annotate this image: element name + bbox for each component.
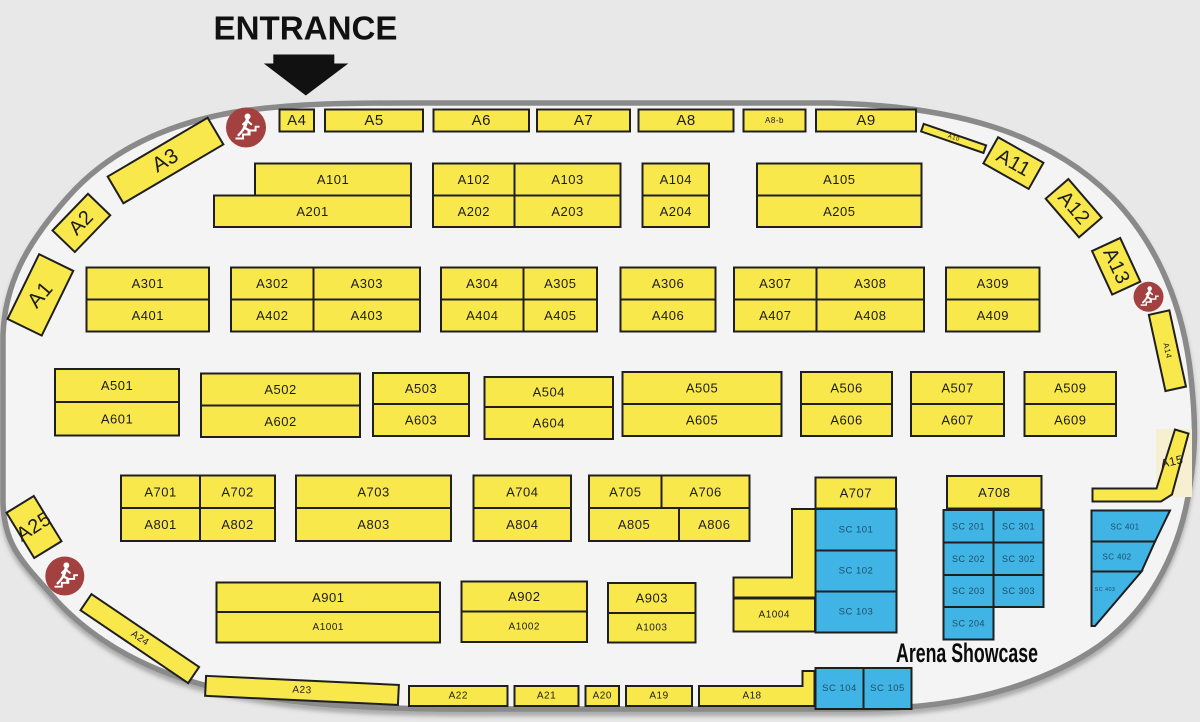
svg-text:A504: A504 (533, 385, 565, 400)
svg-text:A202: A202 (458, 204, 490, 219)
svg-text:SC 401: SC 401 (1110, 523, 1139, 532)
svg-text:A8-b: A8-b (765, 116, 784, 125)
svg-text:A105: A105 (823, 172, 855, 187)
svg-text:A804: A804 (506, 517, 538, 532)
svg-text:A903: A903 (636, 591, 668, 606)
svg-text:A604: A604 (533, 416, 565, 431)
svg-text:ENTRANCE: ENTRANCE (214, 10, 398, 47)
svg-text:A506: A506 (830, 381, 862, 396)
svg-text:A204: A204 (660, 204, 692, 219)
svg-text:SC 104: SC 104 (822, 683, 857, 694)
svg-text:SC 301: SC 301 (1002, 521, 1035, 531)
svg-text:A1001: A1001 (313, 622, 344, 633)
svg-text:A301: A301 (132, 276, 164, 291)
svg-text:A308: A308 (854, 276, 886, 291)
svg-text:A18: A18 (743, 691, 762, 702)
svg-text:A1004: A1004 (759, 610, 790, 621)
svg-text:A803: A803 (357, 517, 389, 532)
svg-text:A304: A304 (466, 276, 498, 291)
svg-text:A902: A902 (508, 589, 540, 604)
svg-text:SC 103: SC 103 (839, 607, 874, 618)
svg-text:SC 202: SC 202 (952, 554, 985, 564)
svg-text:A701: A701 (144, 484, 176, 499)
svg-text:A21: A21 (537, 691, 556, 702)
svg-text:A606: A606 (830, 413, 862, 428)
svg-text:A503: A503 (405, 381, 437, 396)
svg-text:A305: A305 (544, 276, 576, 291)
svg-text:A502: A502 (264, 382, 296, 397)
svg-text:A801: A801 (144, 517, 176, 532)
svg-text:SC 203: SC 203 (952, 586, 985, 596)
svg-text:A6: A6 (472, 112, 491, 129)
svg-text:A409: A409 (977, 308, 1009, 323)
svg-text:A201: A201 (296, 204, 328, 219)
svg-text:SC 402: SC 402 (1102, 553, 1131, 562)
svg-text:A9: A9 (856, 112, 875, 129)
svg-text:A605: A605 (686, 413, 718, 428)
svg-text:A406: A406 (652, 308, 684, 323)
svg-text:A703: A703 (357, 484, 389, 499)
svg-text:A20: A20 (593, 691, 612, 702)
svg-text:SC 101: SC 101 (839, 524, 874, 535)
svg-text:A8: A8 (676, 112, 695, 129)
svg-text:A404: A404 (466, 308, 498, 323)
svg-text:SC 403: SC 403 (1095, 587, 1116, 593)
svg-text:A104: A104 (660, 172, 692, 187)
svg-text:A505: A505 (686, 381, 718, 396)
svg-text:A509: A509 (1054, 381, 1086, 396)
svg-text:A707: A707 (840, 486, 872, 501)
svg-text:A401: A401 (132, 308, 164, 323)
svg-text:A609: A609 (1054, 413, 1086, 428)
svg-text:A303: A303 (351, 276, 383, 291)
svg-text:A706: A706 (689, 484, 721, 499)
svg-text:A23: A23 (292, 684, 312, 696)
svg-text:SC 105: SC 105 (870, 683, 905, 694)
svg-text:SC 102: SC 102 (839, 566, 874, 577)
svg-text:A704: A704 (506, 484, 538, 499)
svg-text:A103: A103 (551, 172, 583, 187)
svg-text:Arena Showcase: Arena Showcase (896, 638, 1038, 668)
svg-text:A603: A603 (405, 413, 437, 428)
svg-text:A702: A702 (221, 484, 253, 499)
svg-text:A805: A805 (618, 517, 650, 532)
svg-text:A203: A203 (551, 204, 583, 219)
svg-text:A405: A405 (544, 308, 576, 323)
svg-text:A102: A102 (458, 172, 490, 187)
svg-text:A507: A507 (941, 381, 973, 396)
svg-text:A802: A802 (221, 517, 253, 532)
svg-text:SC 204: SC 204 (952, 618, 985, 628)
svg-text:A101: A101 (317, 172, 349, 187)
svg-text:A205: A205 (823, 204, 855, 219)
svg-text:A5: A5 (364, 112, 383, 129)
svg-text:A402: A402 (256, 308, 288, 323)
svg-text:A708: A708 (978, 485, 1010, 500)
svg-text:SC 302: SC 302 (1002, 554, 1035, 564)
svg-text:A407: A407 (759, 308, 791, 323)
svg-text:SC 303: SC 303 (1002, 586, 1035, 596)
svg-text:A306: A306 (652, 276, 684, 291)
svg-text:A19: A19 (649, 691, 668, 702)
svg-text:A7: A7 (574, 112, 593, 129)
svg-text:A501: A501 (101, 378, 133, 393)
svg-text:SC 201: SC 201 (952, 521, 985, 531)
svg-text:A403: A403 (351, 308, 383, 323)
svg-text:A307: A307 (759, 276, 791, 291)
svg-text:A602: A602 (264, 414, 296, 429)
svg-text:A309: A309 (977, 276, 1009, 291)
svg-text:A601: A601 (101, 411, 133, 426)
svg-text:A806: A806 (698, 517, 730, 532)
svg-text:A1003: A1003 (636, 622, 667, 633)
svg-text:A1002: A1002 (509, 621, 540, 632)
svg-text:A607: A607 (941, 413, 973, 428)
svg-text:A302: A302 (256, 276, 288, 291)
svg-text:A705: A705 (609, 484, 641, 499)
svg-text:A901: A901 (312, 590, 344, 605)
svg-text:A4: A4 (287, 112, 306, 129)
svg-text:A22: A22 (449, 691, 468, 702)
svg-text:A408: A408 (854, 308, 886, 323)
